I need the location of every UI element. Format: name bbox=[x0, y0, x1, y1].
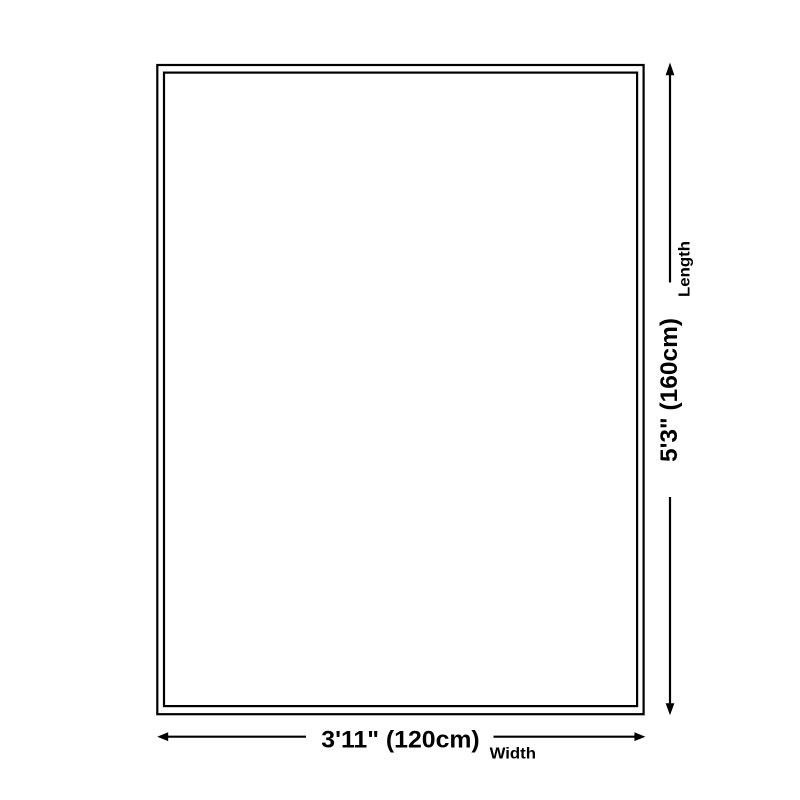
svg-text:5'3" (160cm): 5'3" (160cm) bbox=[656, 318, 683, 462]
svg-text:Length: Length bbox=[676, 241, 693, 297]
svg-text:Width: Width bbox=[490, 746, 536, 763]
svg-text:3'11" (120cm): 3'11" (120cm) bbox=[321, 727, 479, 754]
